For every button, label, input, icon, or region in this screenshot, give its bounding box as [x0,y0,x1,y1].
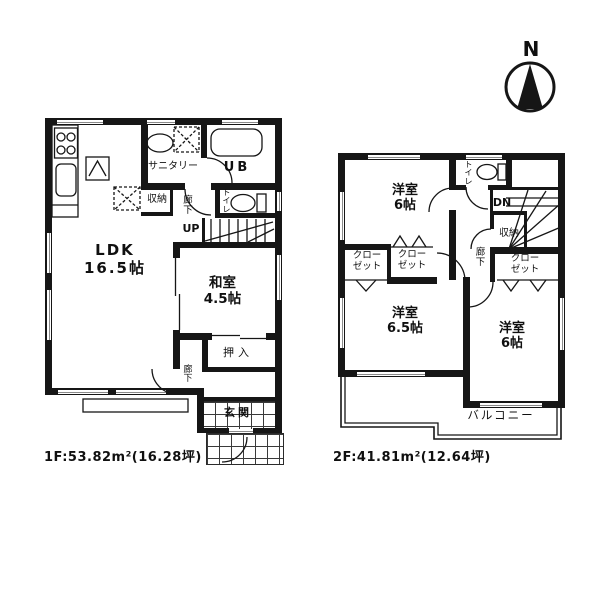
toilet-1f-icon [231,194,266,212]
room-label-ldk: LDK 16.5帖 [65,242,165,277]
room-label-hallway-lower-1f: 廊 下 [181,366,195,385]
stairs-1f [205,219,274,242]
bathtub-icon [211,129,262,156]
washing-machine-icon [174,127,199,152]
room-label-bedroom-north: 洋室 6帖 [370,183,440,214]
room-label-closet-east: クロー ゼット [503,253,547,275]
room-label-sanitary: サニタリー [144,161,202,173]
compass-icon [506,63,554,111]
toilet-2f-icon [477,164,506,180]
room-label-storage-2f: 収納 [494,228,524,240]
floor-hatch-icon [114,187,140,210]
stairs-up-label: UP [179,223,203,236]
floorplan-canvas: N LDK 16.5帖 和室 4.5帖 サニタリー UB 収納 廊 下 UP ト… [0,0,602,602]
room-label-washitsu: 和室 4.5帖 [185,276,260,308]
terrace-step [83,399,188,412]
stairs-down-label: DN [487,197,517,210]
room-label-bedroom-southwest: 洋室 6.5帖 [370,306,440,337]
room-label-hallway-1f: 廊 下 [180,196,196,216]
room-label-closet-center: クロー ゼット [391,249,433,271]
washbasin-icon [147,134,173,152]
floor1-area-caption: 1F:53.82m²(16.28坪) [44,446,202,465]
room-label-toilet-2f: ト イ レ [463,161,474,186]
room-label-entrance: 玄関 [211,407,265,420]
room-label-unit-bath: UB [215,160,259,175]
room-label-closet-west: クロー ゼット [346,250,388,272]
room-label-hallway-2f: 廊 下 [473,248,488,268]
floor2-area-caption: 2F:41.81m²(12.64坪) [333,446,491,465]
room-label-oshiire: 押入 [212,347,264,360]
room-label-balcony: バルコニー [455,409,547,423]
refrigerator-icon [86,157,109,180]
room-label-bedroom-southeast: 洋室 6帖 [477,321,547,352]
plan-linework [0,0,602,602]
room-label-toilet-1f: ト イ レ [221,189,232,214]
room-label-storage-1f: 収納 [143,194,171,206]
kitchen-counter-icon [52,125,78,217]
compass-north-label: N [519,38,543,62]
